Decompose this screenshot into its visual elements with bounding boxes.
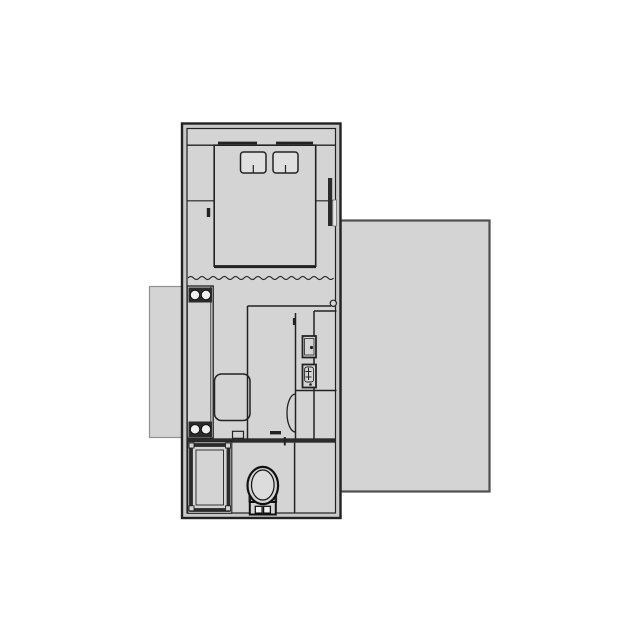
sink-drain-dot [310,346,313,349]
cabinet-handle [293,318,296,325]
shower-corner [189,443,194,448]
door-jamb [284,437,286,445]
fixture-dot [309,383,312,386]
shower-corner [189,506,194,511]
kitchen-counter [187,286,213,438]
door-hinge [330,300,336,306]
burner-right [201,290,210,299]
toilet-bowl-inner [251,470,274,500]
threshold-step [233,431,244,438]
floor-plan-canvas [0,0,640,640]
sink-bowl-left [190,425,199,434]
threshold-bar [270,431,281,434]
armchair [215,374,251,421]
shower-corner [226,506,231,511]
shower-tray [196,450,224,505]
deck-right [341,221,490,492]
cooktop-inner [305,367,314,382]
burner-left [190,290,199,299]
toilet-tank-button-left [255,506,262,513]
sink-bowl-right [201,425,210,434]
deck-left [150,287,184,438]
bed-handle [207,208,210,217]
shower-corner [226,443,231,448]
toilet-tank-button-right [264,506,271,513]
floor-plan [0,0,640,640]
side-window-sill [333,200,337,226]
side-window [328,178,332,226]
